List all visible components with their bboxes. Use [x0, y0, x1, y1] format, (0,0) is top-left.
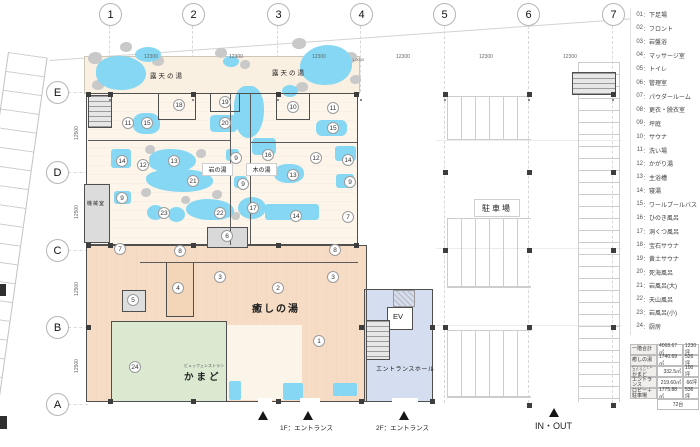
structural-column — [611, 403, 616, 408]
legend-item-number: 09 — [634, 120, 643, 126]
structural-column — [443, 170, 448, 175]
room-marker: 7 — [342, 211, 354, 223]
dim-label: 12500 — [74, 205, 80, 219]
legend-item-number: 14 — [634, 188, 643, 194]
machine-room — [84, 184, 110, 243]
legend-item: 05：トイレ — [634, 62, 699, 76]
legend-item-number: 23 — [634, 310, 643, 316]
structural-column — [86, 243, 91, 248]
table-tsubo-cell: 536坪 — [683, 388, 699, 399]
legend-item-label: ワールプールバス — [649, 200, 699, 209]
grid-col-1: 1 — [99, 3, 122, 26]
entrance-2f-label: 2F：エントランス — [376, 422, 429, 432]
grid-row-A: A — [46, 393, 69, 416]
garden-rock — [120, 42, 132, 52]
legend-item: 09：坪庭 — [634, 116, 699, 130]
legend-item: 16：ひのき風呂 — [634, 211, 699, 225]
structural-column — [443, 92, 448, 97]
room-marker: 8 — [329, 244, 341, 256]
legend-item-number: 07 — [634, 93, 643, 99]
structural-column — [527, 248, 532, 253]
legend-item-label: ひのき風呂 — [649, 213, 699, 222]
bath-pool — [300, 45, 352, 85]
door-opening — [258, 398, 272, 404]
area-table-row: ビュッフェレストランかまど332.5㎡100坪 — [630, 366, 699, 377]
structural-column — [86, 92, 91, 97]
legend-item-number: 13 — [634, 174, 643, 180]
legend-item-number: 04 — [634, 52, 643, 58]
door-opening — [300, 398, 320, 404]
legend-item-label: 更衣・脱衣室 — [649, 105, 699, 114]
legend-item-number: 06 — [634, 80, 643, 86]
legend-item: 06：管理室 — [634, 76, 699, 90]
structural-column — [359, 399, 364, 404]
legend-item-label: 宝石サウナ — [649, 241, 699, 250]
table-label-cell: 一階合計 — [630, 344, 657, 355]
outdoor-bath-label-left: 露天の湯 — [150, 70, 184, 80]
legend-item-number: 22 — [634, 296, 643, 302]
legend-item-label: トイレ — [649, 64, 699, 73]
structural-column — [108, 92, 113, 97]
structural-column — [86, 325, 91, 330]
iwa-no-yu-label: 岩の湯 — [202, 163, 233, 176]
grid-line — [68, 250, 88, 251]
grid-col-2: 2 — [182, 3, 205, 26]
legend-item: 22：天山風呂 — [634, 292, 699, 306]
structural-column — [276, 243, 281, 248]
site-marker — [0, 284, 6, 296]
area-table-row: 72台 — [630, 399, 699, 410]
interior-wall — [251, 142, 357, 143]
legend-item-label: 洞くつ風呂 — [649, 227, 699, 236]
legend-item-number: 05 — [634, 66, 643, 72]
structural-column — [191, 92, 196, 97]
grid-line — [68, 172, 88, 173]
room-marker: 24 — [129, 361, 141, 373]
legend-item: 08：更衣・脱衣室 — [634, 103, 699, 117]
legend-item: 11：洗い場 — [634, 143, 699, 157]
legend-item-number: 11 — [634, 147, 643, 153]
room-marker: 13 — [287, 169, 299, 181]
dim-label: 12300 — [229, 54, 243, 60]
legend-item-label: パウダールーム — [649, 92, 699, 101]
dim-tick — [528, 99, 530, 101]
parking-stalls — [447, 96, 531, 140]
room-marker: 22 — [214, 207, 226, 219]
room-marker: 11 — [327, 102, 339, 114]
legend-item: 12：かがり湯 — [634, 157, 699, 171]
area-summary-table: 一階合計4068.67㎡1230坪癒しの湯1740.69㎡526坪ビュッフェレス… — [630, 344, 699, 410]
room-marker: 9 — [116, 192, 128, 204]
outdoor-bath-label-right: 露天の湯 — [272, 67, 306, 77]
structural-column — [108, 243, 113, 248]
room-marker: 10 — [287, 101, 299, 113]
dim-label: 12300 — [563, 54, 577, 60]
structural-column — [276, 92, 281, 97]
legend-item: 24：厨房 — [634, 320, 699, 334]
room-marker: 2 — [272, 282, 284, 294]
structural-column — [443, 248, 448, 253]
room-marker: 15 — [327, 122, 339, 134]
room-marker: 12 — [137, 159, 149, 171]
dim-tick — [612, 99, 614, 101]
dim-tick — [277, 99, 279, 101]
structural-column — [527, 92, 532, 97]
entrance-arrow-1f — [303, 411, 313, 420]
grid-col-4: 4 — [350, 3, 373, 26]
legend-item-label: 岩盤浴 — [649, 37, 699, 46]
legend-item-number: 08 — [634, 107, 643, 113]
dim-tick — [109, 99, 111, 101]
room-marker: 19 — [219, 96, 231, 108]
garden-rock — [292, 38, 306, 49]
garden-rock — [350, 75, 361, 84]
legend-item-label: かがり湯 — [649, 159, 699, 168]
legend-item-number: 21 — [634, 283, 643, 289]
door-opening — [392, 398, 418, 404]
legend-item-label: 岩風呂(大) — [649, 281, 699, 290]
legend-item: 04：マッサージ室 — [634, 49, 699, 63]
site-marker — [0, 416, 7, 429]
legend-item-number: 02 — [634, 25, 643, 31]
legend-item-label: 下足場 — [649, 10, 699, 19]
legend-item-label: 黄土サウナ — [649, 254, 699, 263]
structural-column — [527, 325, 532, 330]
grid-line — [444, 26, 445, 403]
structural-column — [354, 92, 359, 97]
legend-item-label: 主浴槽 — [649, 173, 699, 182]
structural-column — [359, 325, 364, 330]
structural-column — [191, 243, 196, 248]
entrance-arrow — [258, 411, 268, 420]
parking-stalls — [447, 330, 531, 398]
table-label-cell: ビュッフェレストランかまど — [630, 366, 657, 377]
room-marker: 14 — [342, 154, 354, 166]
ev-shaft-hatch — [393, 290, 415, 307]
room-marker: 18 — [173, 99, 185, 111]
parking-stair-block — [572, 72, 616, 95]
iyashi-no-yu-label: 癒しの湯 — [252, 300, 300, 315]
parking-label: 駐車場 — [474, 199, 520, 217]
ki-no-yu-label: 木の湯 — [246, 163, 277, 176]
room-marker: 5 — [127, 294, 139, 306]
parking-stalls — [578, 62, 620, 402]
room-marker: 17 — [247, 202, 259, 214]
dim-label: 12300 — [396, 54, 410, 60]
legend-item: 20：死海風呂 — [634, 265, 699, 279]
legend-item-label: 岩風呂(小) — [649, 308, 699, 317]
ev-label: EV — [393, 312, 403, 321]
legend-item: 07：パウダールーム — [634, 89, 699, 103]
room-marker: 6 — [221, 230, 233, 242]
room-marker: 20 — [219, 117, 231, 129]
legend-item-label: 管理室 — [649, 78, 699, 87]
legend-item-number: 18 — [634, 242, 643, 248]
legend-item: 14：寝湯 — [634, 184, 699, 198]
dim-label: 12300 — [144, 54, 158, 60]
legend-item-number: 24 — [634, 323, 643, 329]
dim-label: 12300 — [312, 54, 326, 60]
structural-column — [430, 325, 435, 330]
inout-arrow — [549, 408, 559, 417]
legend-item-label: 厨房 — [649, 322, 699, 331]
structural-column — [611, 325, 616, 330]
grid-row-E: E — [46, 81, 69, 104]
entrance-1f-label: 1F：エントランス — [280, 422, 333, 432]
legend-item-number: 15 — [634, 201, 643, 207]
grid-row-B: B — [46, 316, 69, 339]
legend-item-number: 03 — [634, 39, 643, 45]
dim-tick — [444, 99, 446, 101]
grid-col-5: 5 — [433, 3, 456, 26]
legend-item-number: 01 — [634, 12, 643, 18]
room-marker: 21 — [187, 175, 199, 187]
table-tsubo-cell: 100坪 — [683, 366, 699, 377]
legend-item: 18：宝石サウナ — [634, 238, 699, 252]
legend-item-label: サウナ — [649, 132, 699, 141]
table-label-cell: ロビー＋駐車場 — [630, 388, 657, 399]
structural-column — [354, 243, 359, 248]
legend-item: 21：岩風呂(大) — [634, 279, 699, 293]
legend-item-label: マッサージ室 — [649, 51, 699, 60]
garden-rock — [240, 60, 250, 69]
bath-pool — [96, 56, 146, 90]
inout-label: IN・OUT — [535, 419, 572, 432]
entrance-arrow-2f — [399, 411, 409, 420]
kitchen-room — [111, 321, 227, 402]
legend-item: 02：フロント — [634, 22, 699, 36]
entrance-hall-stairs — [366, 320, 390, 360]
room-marker: 13 — [168, 155, 180, 167]
room-marker: 3 — [327, 271, 339, 283]
grid-line — [68, 327, 88, 328]
structural-column — [527, 403, 532, 408]
kamado-label: かまど — [184, 369, 222, 383]
legend-item-label: 死海風呂 — [649, 268, 699, 277]
room-marker: 8 — [174, 245, 186, 257]
legend-item: 01：下足場 — [634, 8, 699, 22]
structural-column — [108, 399, 113, 404]
structural-column — [276, 399, 281, 404]
room-marker: 15 — [141, 117, 153, 129]
room-marker: 3 — [214, 271, 226, 283]
room-marker: 9 — [344, 176, 356, 188]
dim-tick — [192, 99, 194, 101]
interior-wall — [140, 262, 358, 263]
legend-item-label: 天山風呂 — [649, 295, 699, 304]
legend-item: 03：岩盤浴 — [634, 35, 699, 49]
grid-col-3: 3 — [267, 3, 290, 26]
grid-line — [68, 404, 88, 405]
legend-item: 15：ワールプールバス — [634, 198, 699, 212]
grid-col-7: 7 — [602, 3, 625, 26]
room-marker: 16 — [262, 149, 274, 161]
legend-item-number: 12 — [634, 161, 643, 167]
grid-row-C: C — [46, 239, 69, 262]
room-marker: 14 — [116, 155, 128, 167]
legend-item-number: 20 — [634, 269, 643, 275]
room-marker: 7 — [114, 243, 126, 255]
legend-item-number: 10 — [634, 134, 643, 140]
structural-column — [611, 170, 616, 175]
table-label-cell: エントランス — [630, 377, 657, 388]
legend-item: 13：主浴槽 — [634, 171, 699, 185]
dim-label: 12300 — [479, 54, 493, 60]
room-marker: 1 — [313, 335, 325, 347]
structural-column — [611, 248, 616, 253]
grid-col-6: 6 — [517, 3, 540, 26]
machine-room-label: 機械室 — [87, 200, 105, 207]
room-marker: 12 — [310, 152, 322, 164]
parking-stalls — [447, 218, 531, 288]
table-spacer-cell — [630, 399, 657, 410]
interior-wall — [88, 140, 230, 141]
structural-column — [430, 399, 435, 404]
dim-label: 12500 — [74, 359, 80, 373]
room-marker: 23 — [158, 207, 170, 219]
legend-item-number: 17 — [634, 229, 643, 235]
room-marker: 11 — [122, 117, 134, 129]
room-marker: 4 — [172, 282, 184, 294]
legend-item-label: 坪庭 — [649, 119, 699, 128]
area-table-row: ロビー＋駐車場1775.88㎡536坪 — [630, 388, 699, 399]
dim-label-extra: 1,0000 — [352, 57, 364, 62]
room-legend: 01：下足場02：フロント03：岩盤浴04：マッサージ室05：トイレ06：管理室… — [630, 8, 699, 335]
legend-item-label: フロント — [649, 24, 699, 33]
table-area-cell: 332.5㎡ — [657, 366, 683, 377]
legend-item: 10：サウナ — [634, 130, 699, 144]
legend-item: 23：岩風呂(小) — [634, 306, 699, 320]
table-area-cell: 1775.88㎡ — [657, 388, 683, 399]
legend-item-label: 寝湯 — [649, 186, 699, 195]
room-marker: 14 — [290, 210, 302, 222]
dim-tick — [360, 99, 362, 101]
dim-label: 12500 — [74, 282, 80, 296]
structural-column — [611, 92, 616, 97]
room-marker: 9 — [237, 178, 249, 190]
table-area-cell: 1740.69㎡ — [657, 355, 683, 366]
floor-plan-canvas: 1 2 3 4 5 6 7 E D C B A 12300 12300 1230… — [0, 0, 700, 447]
table-count-cell: 72台 — [657, 399, 699, 410]
dim-label: 12500 — [74, 126, 80, 140]
grid-row-D: D — [46, 161, 69, 184]
legend-item: 19：黄土サウナ — [634, 252, 699, 266]
legend-item-label: 洗い場 — [649, 146, 699, 155]
legend-item-number: 16 — [634, 215, 643, 221]
legend-item: 17：洞くつ風呂 — [634, 225, 699, 239]
entrance-hall-label: エントランスホール — [376, 364, 434, 373]
legend-item-number: 19 — [634, 256, 643, 262]
structural-column — [191, 399, 196, 404]
structural-column — [443, 325, 448, 330]
structural-column — [527, 170, 532, 175]
